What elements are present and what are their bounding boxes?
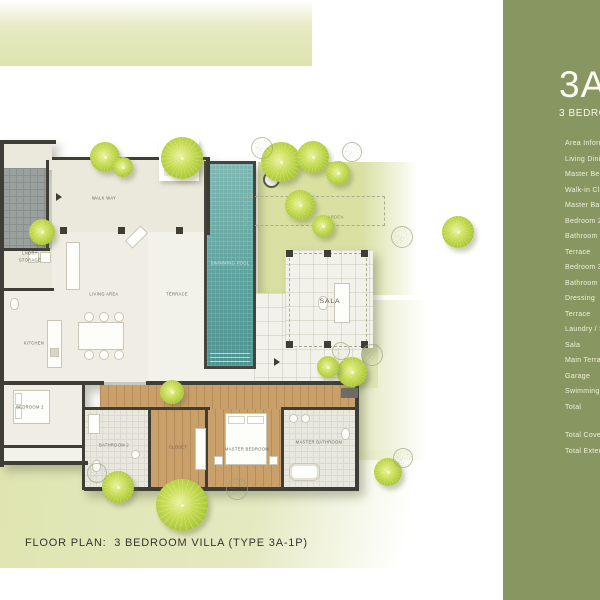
area-list-item: Terrace <box>565 307 600 323</box>
tree-icon <box>342 142 362 162</box>
unit-type-subtitle: 3 BEDROOM VILLA <box>559 108 600 119</box>
tree-icon <box>332 342 350 360</box>
tree-icon <box>361 344 383 366</box>
area-list-item: Laundry / Storage <box>565 322 600 338</box>
area-list-header: Area Information <box>565 136 600 152</box>
area-list: Area Information Living DiningMaster Bed… <box>565 136 600 459</box>
area-list-item: Bathroom 2 <box>565 229 600 245</box>
area-list-item: Walk-in Closet <box>565 183 600 199</box>
area-list-item: Bathroom 3 <box>565 276 600 292</box>
tree-icon <box>156 479 208 531</box>
tree-icon <box>326 161 350 185</box>
area-list-item: Total <box>565 400 600 416</box>
area-list-item: Sala <box>565 338 600 354</box>
area-items: Living DiningMaster BedroomWalk-in Close… <box>565 152 600 416</box>
area-list-item: Dressing <box>565 291 600 307</box>
area-list-item: Master Bedroom <box>565 167 600 183</box>
tree-icon <box>297 141 329 173</box>
area-list-item: Main Terrace <box>565 353 600 369</box>
tree-icon <box>391 226 413 248</box>
area-list-item: Bedroom 3 <box>565 260 600 276</box>
tree-icon <box>102 471 134 503</box>
unit-type-title: 3A-1P <box>559 64 600 106</box>
tree-icon <box>226 478 248 500</box>
tree-icon <box>393 448 413 468</box>
tree-icon <box>161 137 203 179</box>
tree-icon <box>285 190 315 220</box>
area-total-item: Total Covered Area <box>565 428 600 444</box>
tree-icon <box>87 463 107 483</box>
tree-icon <box>160 380 184 404</box>
tree-icon <box>29 219 55 245</box>
info-panel: 3A-1P 3 BEDROOM VILLA Area Information L… <box>503 0 600 600</box>
area-list-item: Swimming Pool <box>565 384 600 400</box>
tree-icon <box>442 216 474 248</box>
area-list-item: Bedroom 2 <box>565 214 600 230</box>
area-list-item: Master Bathroom <box>565 198 600 214</box>
tree-icon <box>113 157 133 177</box>
area-list-item: Living Dining <box>565 152 600 168</box>
area-list-item: Garage <box>565 369 600 385</box>
area-totals: Total Covered AreaTotal External Area <box>565 428 600 459</box>
area-total-item: Total External Area <box>565 444 600 460</box>
area-list-item: Terrace <box>565 245 600 261</box>
tree-icon <box>317 356 339 378</box>
tree-icon <box>312 215 334 237</box>
tree-icon <box>251 137 273 159</box>
floor-plan-page: WALK WAYLNDRYSTORAGEKITCHENLIVING AREATE… <box>0 0 600 600</box>
